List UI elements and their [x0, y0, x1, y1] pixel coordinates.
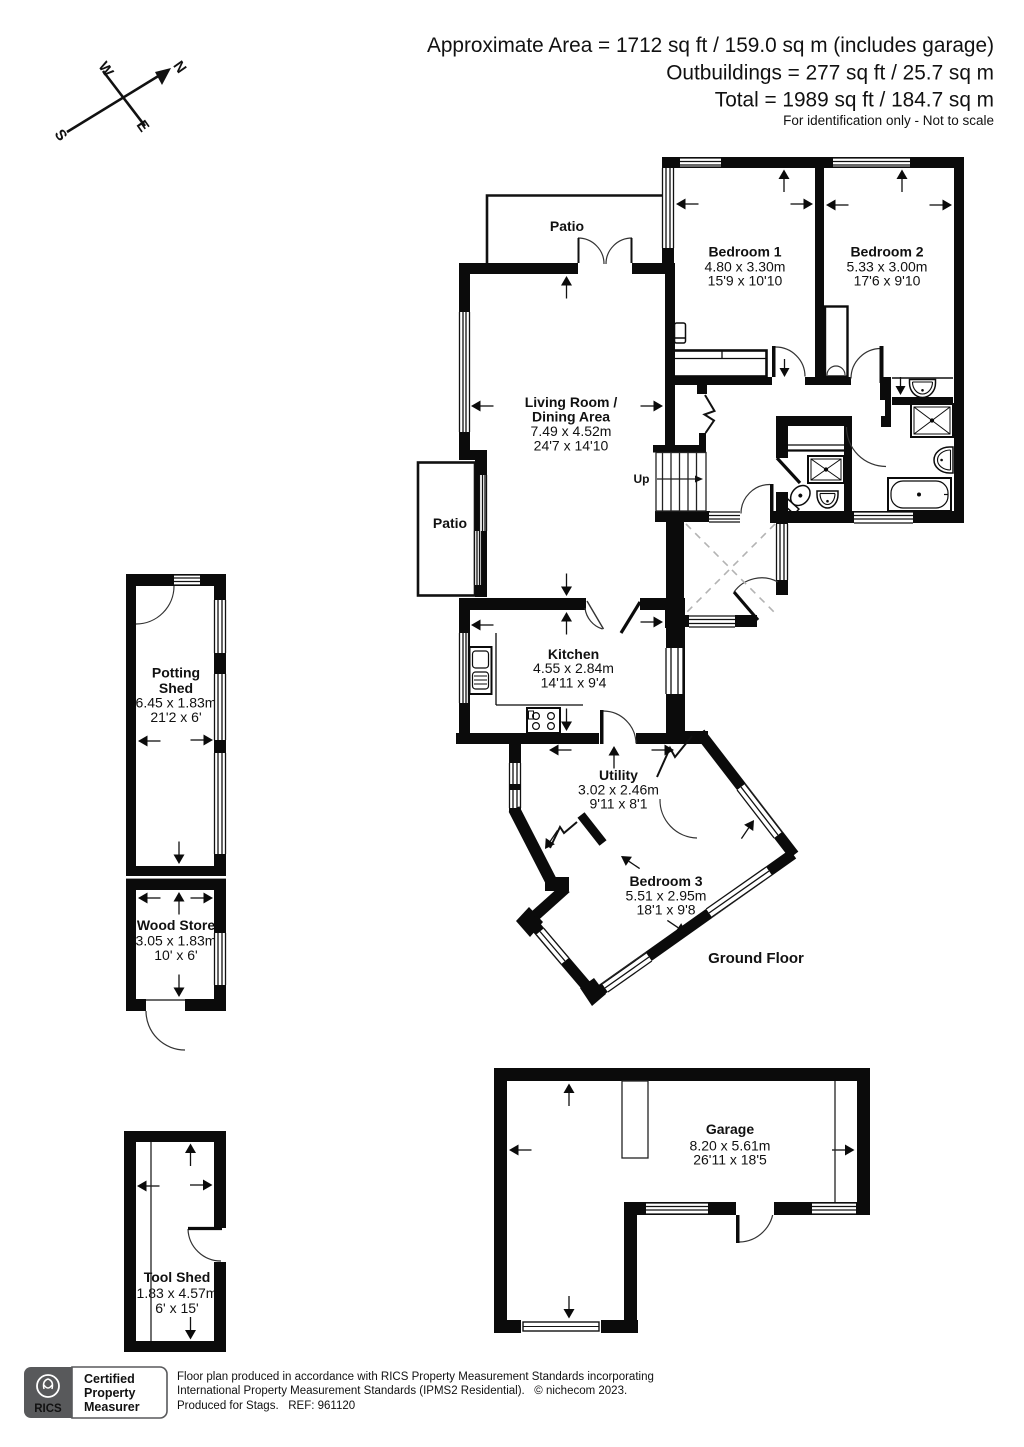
- svg-text:Property: Property: [84, 1386, 135, 1400]
- svg-text:Outbuildings = 277 sq ft / 25.: Outbuildings = 277 sq ft / 25.7 sq m: [666, 62, 994, 85]
- svg-text:18'1 x 9'8: 18'1 x 9'8: [636, 902, 695, 918]
- svg-text:Potting: Potting: [152, 665, 200, 681]
- svg-text:6' x 15': 6' x 15': [155, 1300, 198, 1316]
- svg-text:Produced for Stags. REF: 961: Produced for Stags. REF: 961120: [177, 1400, 355, 1412]
- svg-text:Certified: Certified: [84, 1372, 135, 1386]
- svg-text:1.83 x 4.57m: 1.83 x 4.57m: [137, 1285, 218, 1301]
- svg-text:Ground Floor: Ground Floor: [708, 950, 804, 967]
- svg-text:9'11 x 8'1: 9'11 x 8'1: [589, 796, 647, 812]
- svg-text:14'11 x 9'4: 14'11 x 9'4: [541, 675, 607, 691]
- svg-text:Up: Up: [634, 472, 650, 486]
- svg-text:10' x 6': 10' x 6': [154, 947, 197, 963]
- svg-text:International Property Measure: International Property Measurement Stand…: [177, 1385, 627, 1397]
- svg-text:For identification only - Not: For identification only - Not to scale: [783, 113, 994, 128]
- svg-text:Wood Store: Wood Store: [137, 917, 216, 933]
- svg-text:Approximate Area = 1712 sq ft: Approximate Area = 1712 sq ft / 159.0 sq…: [427, 34, 994, 57]
- svg-text:Patio: Patio: [433, 515, 467, 531]
- svg-text:Patio: Patio: [550, 218, 584, 234]
- svg-text:Total = 1989 sq ft / 184.7 sq: Total = 1989 sq ft / 184.7 sq m: [715, 89, 994, 112]
- svg-text:17'6 x 9'10: 17'6 x 9'10: [854, 273, 921, 289]
- svg-text:Bedroom 1: Bedroom 1: [708, 244, 781, 260]
- svg-text:Tool Shed: Tool Shed: [144, 1269, 211, 1285]
- svg-text:Bedroom 2: Bedroom 2: [850, 244, 923, 260]
- svg-text:26'11 x 18'5: 26'11 x 18'5: [693, 1152, 767, 1168]
- svg-text:Measurer: Measurer: [84, 1400, 140, 1414]
- svg-text:Garage: Garage: [706, 1121, 754, 1137]
- svg-text:21'2 x 6': 21'2 x 6': [150, 709, 201, 725]
- svg-text:15'9 x 10'10: 15'9 x 10'10: [708, 273, 783, 289]
- svg-text:RICS: RICS: [34, 1403, 62, 1415]
- svg-text:Floor plan produced in accorda: Floor plan produced in accordance with R…: [177, 1371, 654, 1383]
- svg-text:24'7 x 14'10: 24'7 x 14'10: [534, 438, 609, 454]
